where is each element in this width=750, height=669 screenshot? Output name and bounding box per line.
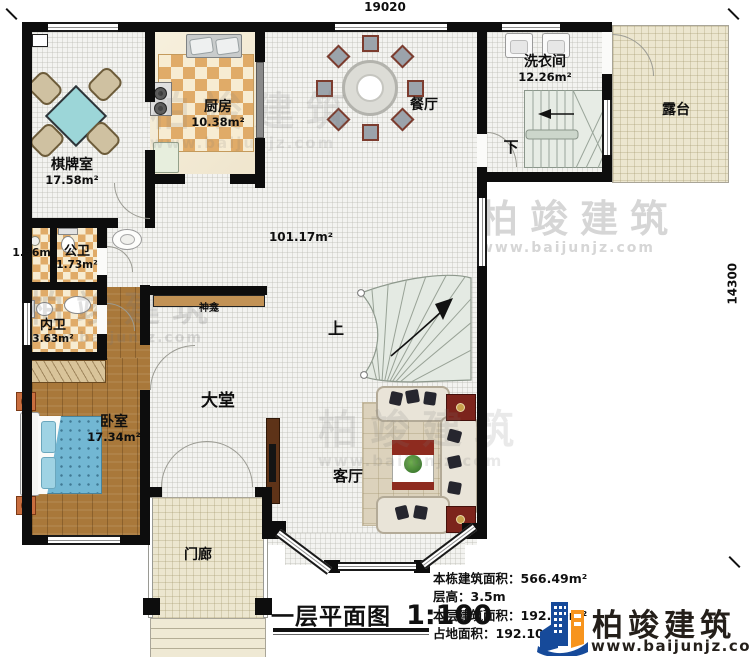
bathroom-sink [64, 296, 91, 314]
stat-label: 本栋建筑面积： [433, 571, 521, 586]
room-name: 内卫 [26, 319, 80, 334]
room-label-dining: 餐厅 [398, 98, 450, 114]
window [48, 22, 118, 32]
red-mat-medallion [456, 403, 465, 412]
sofa-pillow [447, 481, 462, 495]
window [48, 535, 120, 545]
stairs-up-label: 上 [324, 320, 348, 338]
room-area: 3.63m² [26, 334, 80, 346]
room-label-public-wc: 公卫 1.73m² [52, 245, 102, 271]
fridge [153, 142, 179, 173]
wall-flue [32, 34, 48, 47]
window [335, 22, 447, 32]
washing-machine-drum [547, 40, 565, 54]
room-name: 洗衣间 [505, 55, 585, 71]
window [602, 100, 612, 155]
dimension-tick [728, 556, 740, 568]
stat-label: 本层建筑面积： [433, 608, 521, 623]
closet-area-label: 1.56m² [10, 247, 58, 259]
sofa-pillow [413, 505, 428, 520]
dimension-height: 14300 [726, 254, 739, 314]
wall-segment [140, 487, 162, 497]
room-area: 17.58m² [28, 174, 116, 187]
room-name: 公卫 [52, 245, 102, 260]
dimension-width: 19020 [355, 1, 415, 14]
wall-segment [22, 352, 105, 360]
wall-segment [140, 286, 267, 295]
watermark-site: www.baijunjz.com [480, 238, 680, 259]
room-area: 12.26m² [505, 71, 585, 84]
room-name: 棋牌室 [28, 158, 116, 174]
room-label-private-wc: 内卫 3.63m² [26, 319, 80, 345]
title-underline-thin [273, 634, 429, 635]
sink-basin [189, 36, 214, 55]
stat-label: 层高： [433, 589, 471, 604]
sofa-pillow [423, 391, 437, 406]
tv [269, 444, 276, 482]
toilet-tank [58, 228, 78, 235]
room-area: 1.73m² [52, 260, 102, 272]
wall-segment [140, 497, 150, 537]
curved-staircase-up [355, 268, 479, 386]
porch-column [255, 598, 272, 615]
room-label-lobby: 大堂 [194, 392, 242, 411]
door-opening [477, 134, 487, 167]
coffee-table-runner [392, 440, 434, 455]
stat-value: 3.5m [471, 589, 506, 604]
drawing-title: 一层平面图 [271, 604, 391, 630]
room-label-kitchen: 厨房 10.38m² [178, 100, 258, 129]
stat-label: 占地面积： [433, 626, 496, 641]
washing-machine-drum [510, 40, 528, 54]
porch-steps [150, 619, 266, 657]
bay-window [338, 562, 416, 571]
shrine-shelf: 神龛 [153, 295, 265, 307]
dining-chair [362, 124, 379, 141]
plant [404, 455, 422, 473]
dining-chair [316, 80, 333, 97]
stat-row: 本栋建筑面积：566.49m² [433, 570, 587, 588]
staircase-down [524, 90, 610, 168]
wall-segment [487, 172, 612, 182]
toilet [36, 302, 53, 316]
watermark-name: 柏竣建筑 [480, 200, 680, 238]
title-underline [273, 628, 429, 632]
sink-basin [215, 36, 240, 55]
baijun-logo-icon [534, 598, 590, 656]
room-label-bedroom: 卧室 17.34m² [82, 415, 146, 444]
window [477, 198, 487, 266]
brand-website: www.baijunjz.com [591, 637, 750, 655]
dining-chair [407, 80, 424, 97]
stairs-down-label: 下 [501, 139, 521, 156]
wall-segment [477, 22, 487, 137]
room-area: 10.38m² [178, 116, 258, 129]
wardrobe [22, 360, 106, 383]
room-area: 17.34m² [82, 431, 146, 444]
sofa-pillow [405, 389, 420, 404]
room-label-porch: 门廊 [174, 548, 222, 564]
room-name: 厨房 [178, 100, 258, 116]
hall-area-label: 101.17m² [265, 231, 337, 244]
label-shrine: 神龛 [199, 303, 219, 314]
door-opening [602, 32, 612, 74]
room-label-terrace: 露台 [645, 103, 707, 119]
stat-value: 566.49m² [521, 571, 588, 586]
door-opening [97, 305, 107, 334]
stove-burner [154, 87, 167, 100]
porch-column [143, 598, 160, 615]
room-label-laundry: 洗衣间 12.26m² [505, 55, 585, 84]
wall-segment [145, 32, 155, 102]
window [502, 22, 560, 32]
watermark: 柏竣建筑 www.baijunjz.com [480, 200, 680, 259]
room-label-living: 客厅 [324, 468, 372, 485]
dimension-tick [727, 8, 739, 20]
room-name: 卧室 [82, 415, 146, 431]
dining-table-center [356, 74, 384, 102]
wall-segment [255, 487, 272, 497]
stove-burner [154, 102, 167, 115]
wall-segment [255, 32, 265, 62]
room-label-chess: 棋牌室 17.58m² [28, 158, 116, 187]
coffee-table-runner [392, 482, 434, 490]
pillow [41, 457, 56, 489]
wall-segment [230, 174, 265, 184]
pillow [41, 421, 56, 453]
dining-chair [362, 35, 379, 52]
floor-plan-canvas: 柏竣建筑 www.baijunjz.com 柏竣建筑 www.baijunjz.… [0, 0, 750, 669]
wall-segment [145, 174, 185, 184]
dimension-tick [5, 8, 17, 20]
wash-basin-bowl [120, 234, 135, 245]
wall-segment [22, 282, 107, 290]
